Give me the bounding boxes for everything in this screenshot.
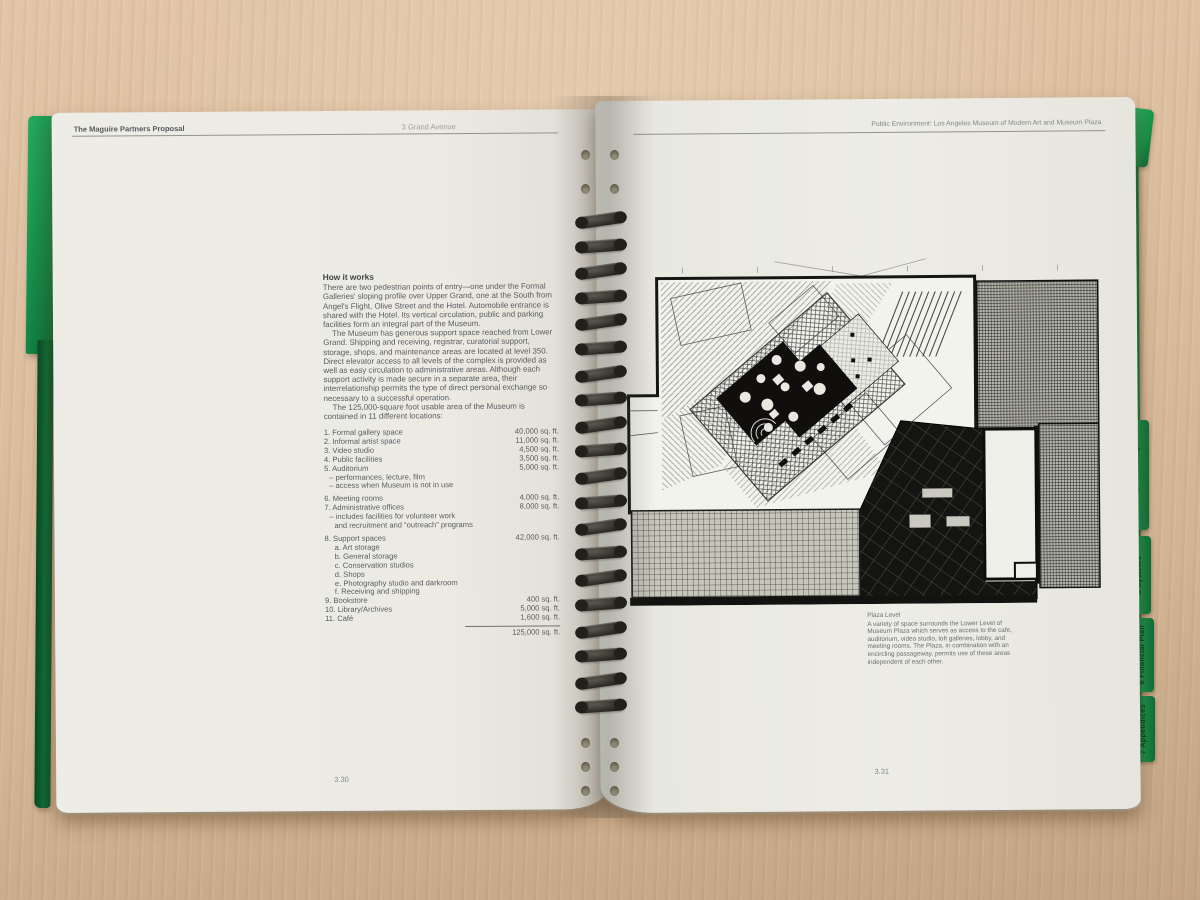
list-row: 11. Café1,600 sq. ft. — [325, 614, 560, 625]
tab-label: 7 Appendices — [1140, 704, 1147, 754]
running-head-proposal: The Maguire Partners Proposal — [74, 124, 185, 134]
body-text: How it works There are two pedestrian po… — [323, 271, 560, 421]
list-row: – access when Museum is not in use — [324, 481, 559, 492]
right-page: Public Environment: Los Angeles Museum o… — [595, 97, 1141, 813]
page-number: 3.30 — [334, 775, 349, 784]
running-head-address: 3 Grand Avenue — [402, 122, 456, 131]
section-title: How it works — [323, 271, 559, 282]
list-label: and recruitment and “outreach” programs — [324, 520, 559, 531]
cover-edge-left — [34, 340, 53, 808]
total-row: 125,000 sq. ft. — [325, 625, 560, 639]
paragraph: There are two pedestrian points of entry… — [323, 282, 559, 330]
header-rule — [633, 130, 1105, 135]
running-head-chapter: Public Environment: Los Angeles Museum o… — [871, 119, 1101, 128]
paragraph: The 125,000-square foot usable area of t… — [324, 401, 560, 421]
caption-title: Plaza Level — [867, 611, 1019, 620]
total-value: 125,000 sq. ft. — [465, 625, 560, 638]
list-row: and recruitment and “outreach” programs — [324, 520, 559, 531]
paragraph: The Museum has generous support space re… — [323, 328, 560, 403]
page-number: 3.31 — [874, 767, 889, 776]
plaza-level-floor-plan — [624, 257, 1112, 606]
figure-caption: Plaza Level A variety of space surrounds… — [867, 611, 1019, 666]
list-value: 1,600 sq. ft. — [465, 614, 560, 624]
cover-edge-left-top — [26, 116, 55, 354]
list-label: – access when Museum is not in use — [324, 481, 559, 492]
left-page: The Maguire Partners Proposal 3 Grand Av… — [52, 109, 607, 813]
desk-background: 4 Major Buildings 5 Systems 6 Financial … — [0, 0, 1200, 900]
space-list: 1. Formal gallery space40,000 sq. ft. 2.… — [324, 427, 560, 639]
caption-body: A variety of space surrounds the Lower L… — [867, 619, 1019, 666]
list-label: 11. Café — [325, 614, 465, 624]
